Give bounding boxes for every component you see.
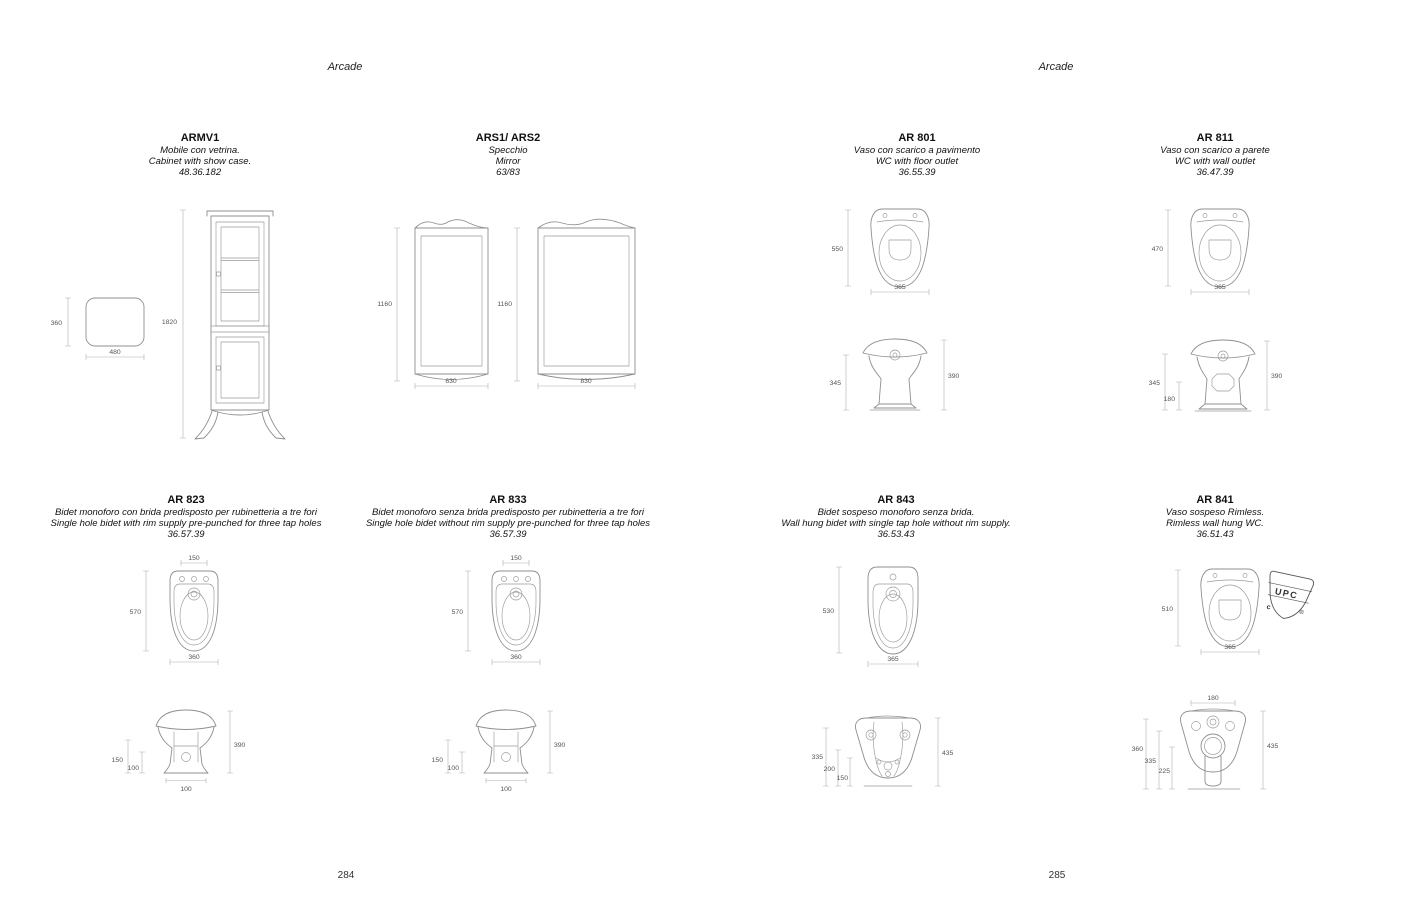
product-ref: 63/83	[338, 167, 678, 178]
product-ref: 36.55.39	[747, 167, 1087, 178]
armv1-top-view-drawing: 360 480	[40, 288, 160, 373]
dim-label: 390	[1271, 373, 1283, 380]
product-code: AR 801	[747, 133, 1087, 144]
dim-label: 435	[1267, 743, 1279, 750]
ar823-top-view-drawing: 150 570 360	[126, 553, 251, 671]
dim-label: 360	[51, 320, 63, 327]
dim-label: 510	[1162, 606, 1174, 613]
dim-label: 365	[887, 656, 899, 663]
product-code: AR 823	[16, 495, 356, 506]
dim-label: 225	[1159, 768, 1171, 775]
product-desc-it: Specchio	[338, 145, 678, 156]
dim-label: 480	[109, 349, 121, 356]
dim-label: 550	[832, 246, 844, 253]
product-desc-it: Bidet sospeso monoforo senza brida.	[726, 507, 1066, 518]
product-ref: 36.57.39	[16, 529, 356, 540]
dim-label: 360	[1132, 746, 1144, 753]
product-desc-en: Single hole bidet without rim supply pre…	[338, 518, 678, 529]
right-page-header: Arcade	[996, 61, 1116, 73]
dim-label: 390	[948, 373, 960, 380]
product-title-ar843: AR 843 Bidet sospeso monoforo senza brid…	[726, 495, 1066, 540]
product-desc-it: Bidet monoforo senza brida predisposto p…	[338, 507, 678, 518]
product-title-ar833: AR 833 Bidet monoforo senza brida predis…	[338, 495, 678, 540]
ar841-rear-view-drawing: 180 360 335 225 435	[1128, 693, 1283, 798]
product-desc-it: Bidet monoforo con brida predisposto per…	[16, 507, 356, 518]
ars1-mirror-drawing: 1160 630	[378, 216, 498, 391]
product-ref: 36.57.39	[338, 529, 678, 540]
dim-label: 100	[128, 765, 140, 772]
product-ref: 48.36.182	[30, 167, 370, 178]
ar801-top-view-drawing: 550 365	[828, 196, 963, 296]
dim-label: 435	[942, 750, 954, 757]
ar811-top-view-drawing: 470 365	[1148, 196, 1283, 296]
dim-label: 360	[510, 654, 522, 661]
product-desc-en: Cabinet with show case.	[30, 156, 370, 167]
product-title-armv1: ARMV1 Mobile con vetrina. Cabinet with s…	[30, 133, 370, 178]
ar833-top-view-drawing: 150 570 360	[448, 553, 573, 671]
product-ref: 36.53.43	[726, 529, 1066, 540]
product-title-ar801: AR 801 Vaso con scarico a pavimento WC w…	[747, 133, 1087, 178]
dim-label: 200	[824, 766, 836, 773]
ar801-front-view-drawing: 345 390	[830, 334, 965, 416]
product-desc-en: Wall hung bidet with single tap hole wit…	[726, 518, 1066, 529]
dim-label: 100	[180, 786, 192, 793]
product-desc-en: WC with floor outlet	[747, 156, 1087, 167]
ar823-front-view-drawing: 150 100 390 100	[108, 700, 243, 795]
armv1-front-view-drawing: 1820	[152, 198, 287, 446]
ar843-top-view-drawing: 530 365	[815, 553, 950, 671]
product-desc-it: Vaso con scarico a parete	[1045, 145, 1385, 156]
dim-label: 630	[445, 378, 457, 385]
dim-label: 1160	[377, 301, 392, 308]
product-desc-en: WC with wall outlet	[1045, 156, 1385, 167]
dim-label: 345	[1149, 380, 1161, 387]
product-desc-it: Vaso con scarico a pavimento	[747, 145, 1087, 156]
product-code: AR 843	[726, 495, 1066, 506]
dim-label: 570	[130, 609, 142, 616]
ars2-mirror-drawing: 1160 830	[498, 216, 643, 391]
product-title-ars: ARS1/ ARS2 Specchio Mirror 63/83	[338, 133, 678, 178]
product-desc-en: Rimless wall hung WC.	[1045, 518, 1385, 529]
dim-label: 365	[894, 284, 906, 291]
product-desc-en: Single hole bidet with rim supply pre-pu…	[16, 518, 356, 529]
upc-c-mark: c	[1266, 604, 1271, 612]
dim-label: 360	[188, 654, 200, 661]
dim-label: 390	[554, 742, 566, 749]
dim-label: 365	[1224, 644, 1236, 651]
product-desc-it: Vaso sospeso Rimless.	[1045, 507, 1385, 518]
product-code: ARS1/ ARS2	[338, 133, 678, 144]
dim-label: 150	[432, 757, 444, 764]
catalog-spread: Arcade Arcade ARMV1 Mobile con vetrina. …	[0, 0, 1401, 904]
product-code: ARMV1	[30, 133, 370, 144]
ar843-rear-view-drawing: 335 200 150 435	[808, 702, 958, 792]
product-code: AR 833	[338, 495, 678, 506]
product-title-ar823: AR 823 Bidet monoforo con brida predispo…	[16, 495, 356, 540]
registered-mark: ®	[1299, 609, 1305, 617]
dim-label: 530	[823, 608, 835, 615]
product-ref: 36.47.39	[1045, 167, 1385, 178]
dim-label: 570	[452, 609, 464, 616]
dim-label: 100	[500, 786, 512, 793]
dim-label: 335	[1145, 758, 1157, 765]
dim-label: 830	[580, 378, 592, 385]
dim-label: 150	[188, 555, 200, 562]
left-page-header: Arcade	[285, 61, 405, 73]
dim-label: 180	[1164, 396, 1176, 403]
product-title-ar811: AR 811 Vaso con scarico a parete WC with…	[1045, 133, 1385, 178]
dim-label: 150	[112, 757, 124, 764]
dim-label: 470	[1152, 246, 1164, 253]
dim-label: 335	[812, 754, 824, 761]
product-ref: 36.51.43	[1045, 529, 1385, 540]
dim-label: 150	[510, 555, 522, 562]
ar811-front-view-drawing: 345 180 390	[1143, 330, 1288, 422]
product-desc-en: Mirror	[338, 156, 678, 167]
upc-certification-logo: UPC c ®	[1262, 565, 1317, 623]
product-code: AR 841	[1045, 495, 1385, 506]
dim-label: 150	[837, 775, 849, 782]
product-code: AR 811	[1045, 133, 1385, 144]
dim-label: 390	[234, 742, 246, 749]
ar833-front-view-drawing: 150 100 390 100	[428, 700, 563, 795]
dim-label: 180	[1207, 695, 1219, 702]
left-page-number: 284	[316, 870, 376, 881]
product-title-ar841: AR 841 Vaso sospeso Rimless. Rimless wal…	[1045, 495, 1385, 540]
dim-label: 1160	[497, 301, 512, 308]
right-page-number: 285	[1027, 870, 1087, 881]
dim-label: 100	[448, 765, 460, 772]
dim-label: 345	[830, 380, 842, 387]
dim-label: 365	[1214, 284, 1226, 291]
product-desc-it: Mobile con vetrina.	[30, 145, 370, 156]
dim-label: 1820	[162, 319, 177, 326]
